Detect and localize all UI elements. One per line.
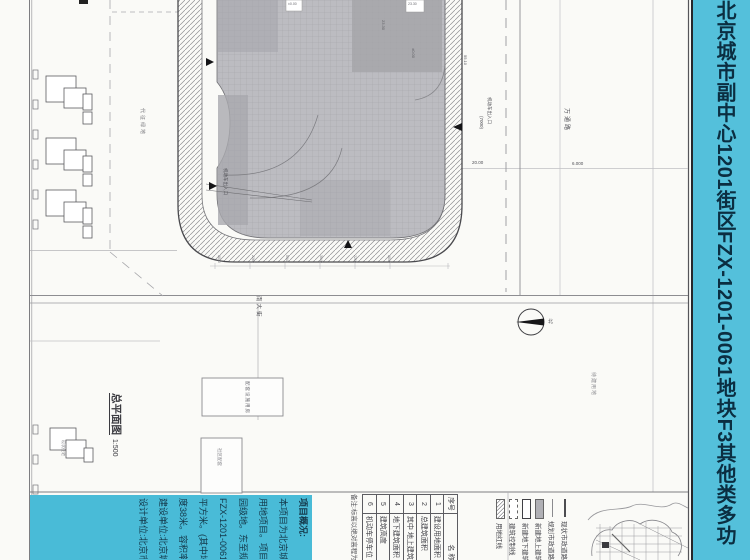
dimension-label: 3040 (217, 255, 221, 263)
table-row: 3其中 地上建筑面积 (403, 495, 417, 560)
overview-line: 平方米。(其中地上建筑面积约 (193, 498, 213, 559)
plan-title: 总平面图 (109, 393, 122, 435)
legend-item: 规划市政道路 (546, 497, 559, 560)
scanned-siteplan-sheet: { "banner": { "title": "北京城市副中心1201街区FZX… (0, 0, 750, 560)
overview-line: 项目概况: (293, 498, 313, 559)
legend-item: 新建地上建筑 (533, 497, 546, 560)
overview-line: 用地项目。项目位于北京市通州区, (253, 498, 273, 559)
legend-swatch-hatch-icon (496, 499, 505, 519)
entrance-label: 机动车出入口 (222, 168, 228, 195)
spec-table: 序号 名 称 指标 1建设用地面积 2总建筑面积 3其中 地上建筑面积 4地下建… (362, 494, 458, 560)
legend-item: 用地红线 (494, 497, 507, 560)
dimension-label: 3040 (387, 255, 391, 263)
overview-line: 度38米。容积率3.0。 (173, 498, 193, 559)
dimension-label: (7000) (479, 116, 484, 129)
dimension-label: 55.10 (463, 55, 468, 65)
legend-title: 图例 (572, 497, 585, 560)
road-name-vertical: 万通路 (563, 108, 572, 132)
level-label: 23.30 (381, 20, 386, 30)
legend-swatch-line-icon (552, 499, 553, 517)
dimension-label: 5944 (285, 255, 289, 263)
overview-line: 设计单位:北京市建筑设计研究院 (133, 498, 153, 559)
level-label: 23.30 (408, 2, 417, 6)
legend-swatch-dashed-icon (509, 499, 518, 519)
siteplan-linework (0, 0, 750, 560)
neighbour-building-cores (33, 70, 38, 494)
level-label: ±0.00 (288, 2, 297, 6)
support-building-label: 配套设施用房 (244, 381, 250, 414)
level-label: ±0.00 (411, 48, 416, 58)
project-overview: 项目概况: 本项目为北京城市副中心1201街区FZX- 用地项目。项目位于北京市… (88, 498, 313, 559)
dimension-label: 2260 (353, 255, 357, 263)
dimension-label: 3040 (319, 255, 323, 263)
title-banner: 北京城市副中心1201街区FZX-1201-0061地块F3其他类多功能用地项目 (691, 0, 750, 560)
overview-line: 建设单位:北京城市副中心投资建设集团 (153, 498, 173, 559)
table-row: 2总建筑面积 (417, 495, 431, 560)
remarks: 备注:标高以绝对高程为准,单位为米。 (349, 494, 360, 560)
overview-line: FZX-1201-0061地块为F3其他类多功能 (213, 498, 233, 559)
ancillary-buildings (201, 378, 283, 493)
dimension-label: 20.00 (472, 160, 483, 165)
community-label: 社区配套 (216, 448, 222, 466)
legend-item: 新建地下建筑 (520, 497, 533, 560)
plan-title-block: 总平面图1:500 (102, 393, 126, 465)
housing-label: 现状住宅 (60, 440, 66, 456)
spec-table-block: 序号 名 称 指标 1建设用地面积 2总建筑面积 3其中 地上建筑面积 4地下建… (362, 494, 458, 560)
sheet-title: 北京城市副中心1201街区FZX-1201-0061地块F3其他类多功能用地项目 (693, 0, 750, 560)
legend-block: 图例 现状市政道路 规划市政道路 新建地上建筑 新建地下建筑 建筑控制线 用地红… (493, 497, 585, 560)
north-label: 北 (548, 318, 553, 325)
overview-line: 园级地。东至规划绿地与万通路, (233, 498, 253, 559)
legend-swatch-line-icon (565, 499, 567, 517)
col-name-header: 名 称 (444, 513, 458, 560)
location-map (588, 503, 696, 560)
reserved-plot-label: 待建用地 (590, 372, 597, 396)
remarks-text: 备注:标高以绝对高程为准,单位为米。 (349, 494, 360, 560)
legend-swatch-outline-icon (522, 499, 531, 519)
neighbour-buildings (46, 76, 93, 462)
entrance-label: 机动车出入口 (486, 97, 492, 124)
plan-scale: 1:500 (111, 439, 118, 457)
table-row: 1建设用地面积 (430, 495, 444, 560)
overview-line: 本项目为北京城市副中心1201街区FZX- (273, 498, 293, 559)
table-row: 5建筑高度 (376, 495, 390, 560)
legend-item: 现状市政道路 (559, 497, 572, 560)
building-mass (206, 0, 450, 269)
green-belt-label: 代征绿地 (139, 108, 146, 136)
dimension-label: 6.000 (572, 161, 583, 166)
table-row: 4地下建筑面积 (390, 495, 404, 560)
road-name-horizontal: 南大街 (255, 296, 263, 319)
legend-swatch-fill-icon (535, 499, 544, 519)
table-row: 6机动车停车位 (363, 495, 377, 560)
col-no-header: 序号 (444, 495, 458, 514)
legend-item: 建筑控制线 (507, 497, 520, 560)
dimension-label: 2260 (251, 255, 255, 263)
north-arrow-icon (516, 309, 544, 335)
